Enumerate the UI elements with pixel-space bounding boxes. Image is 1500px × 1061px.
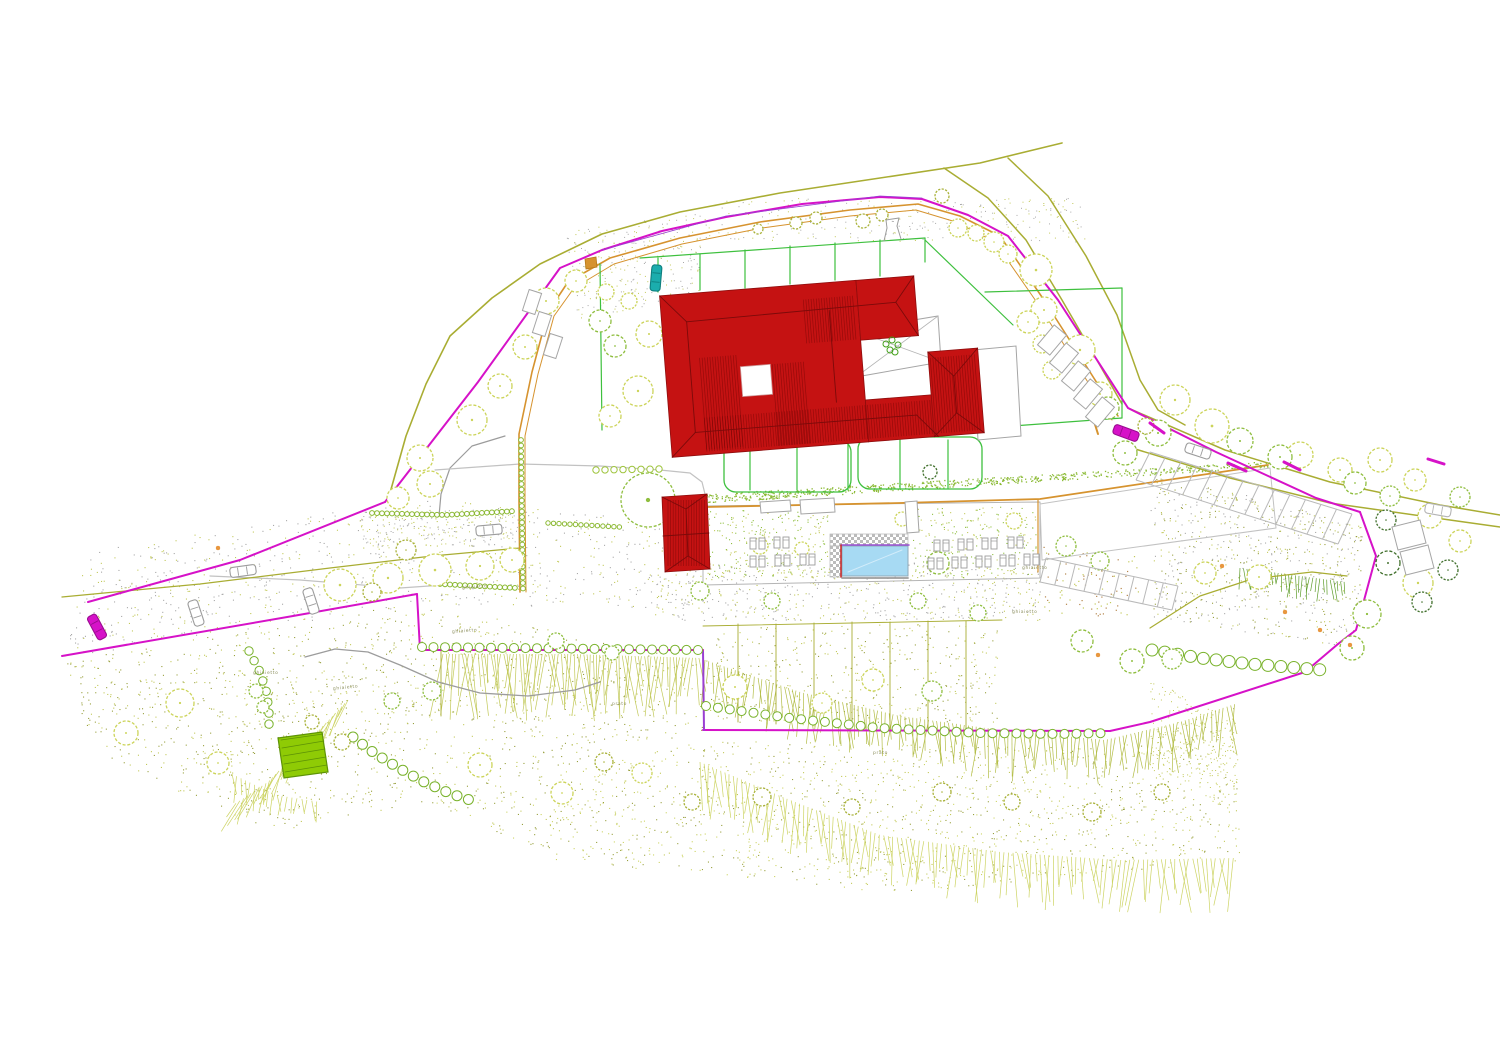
car — [86, 613, 107, 641]
layer-paths-gray — [210, 436, 1276, 696]
layer-hedge-strip — [701, 462, 1269, 503]
car — [229, 564, 256, 578]
car — [302, 587, 320, 615]
car — [1112, 424, 1140, 442]
car — [1184, 442, 1212, 460]
layer-main-building — [660, 271, 985, 457]
text-label: ghiaietto — [1012, 609, 1037, 615]
text-label: prato — [612, 701, 627, 707]
car — [476, 524, 503, 536]
layer-annex-building — [662, 494, 710, 572]
text-label: ghiaietto — [253, 670, 278, 676]
site-plan-svg: ghiaiettoghiaiettoghiaiettoghiaiettoghia… — [0, 0, 1500, 1061]
car — [187, 599, 205, 627]
text-label: ghiaietto — [452, 627, 478, 635]
text-label: ghiaietto — [1022, 565, 1047, 571]
site-plan: ghiaiettoghiaiettoghiaiettoghiaiettoghia… — [0, 0, 1500, 1061]
layer-grass-plot — [278, 732, 328, 778]
car — [650, 265, 662, 292]
layer-slope-hatching — [221, 568, 1345, 913]
text-label: prato — [873, 750, 888, 756]
text-label: ghiaietto — [333, 683, 359, 692]
layer-pool-area — [830, 534, 909, 578]
layer-orchard-rows — [441, 620, 1002, 732]
